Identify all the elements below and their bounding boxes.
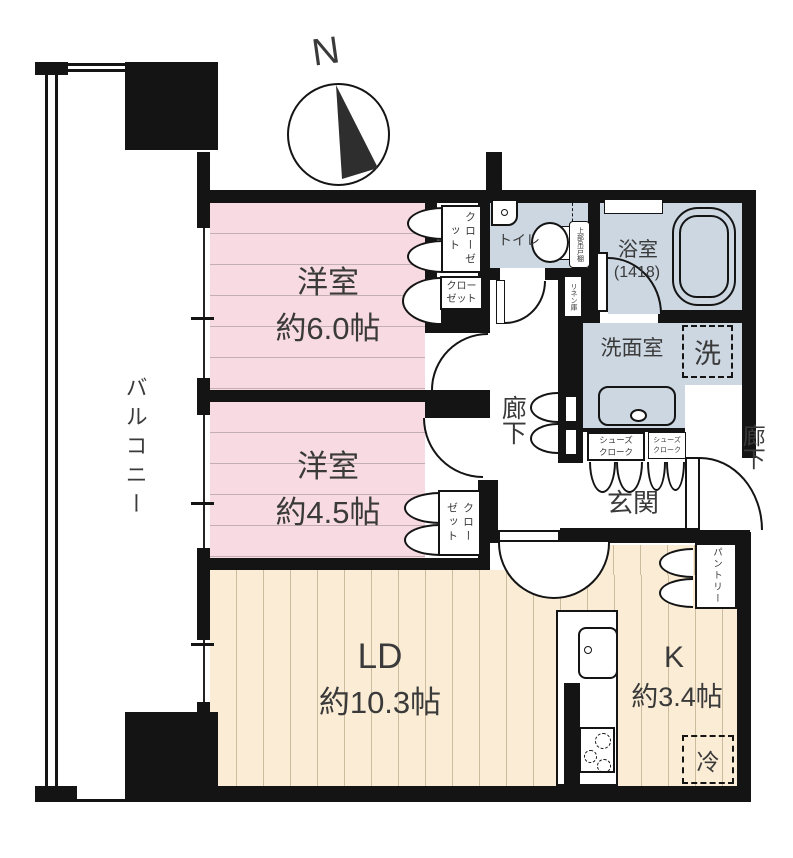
wall bbox=[486, 152, 502, 192]
door-opening bbox=[500, 268, 545, 280]
wall bbox=[197, 152, 210, 192]
wall bbox=[197, 390, 490, 402]
washing-machine: 洗 bbox=[682, 325, 733, 378]
wall bbox=[425, 402, 490, 418]
pantry: パントリー bbox=[695, 543, 737, 609]
compass-north-label: N bbox=[293, 24, 359, 82]
shoe-closet-door-arc bbox=[647, 462, 666, 491]
shoe-closet-label: シューズクローク bbox=[597, 435, 635, 457]
balcony-rail-tie bbox=[68, 63, 125, 66]
closet-label: クローゼット bbox=[444, 496, 476, 550]
balcony-rail-tie bbox=[35, 62, 68, 75]
washing-machine-label: 洗 bbox=[694, 332, 721, 371]
door-arc-toilet bbox=[505, 281, 546, 324]
door-leaf-ld bbox=[498, 530, 560, 542]
balcony-rail bbox=[45, 62, 48, 800]
bath-counter bbox=[604, 199, 663, 214]
window-bedroom1 bbox=[197, 228, 208, 378]
label-bedroom2-size: 約4.5帖 bbox=[240, 494, 416, 532]
wall-storage bbox=[565, 429, 577, 455]
closet-bedroom1-lower: クローゼット bbox=[440, 276, 483, 310]
storage-door-arc bbox=[530, 423, 558, 454]
door-arc-bedroom2 bbox=[423, 418, 483, 478]
vanity-drain bbox=[630, 409, 647, 422]
door-arc-bedroom1 bbox=[431, 333, 488, 390]
wall bbox=[197, 558, 490, 570]
label-ld-name: LD bbox=[330, 636, 430, 678]
label-toilet: トイレ bbox=[489, 231, 549, 249]
compass-needle bbox=[300, 80, 400, 190]
bathtub-inner bbox=[679, 215, 729, 298]
upper-cabinet-label: 上部吊戸棚 bbox=[575, 227, 585, 262]
linen-label: リネン庫 bbox=[568, 283, 578, 311]
closet-bedroom1-upper: クローゼット bbox=[441, 205, 482, 273]
label-kitchen-size: 約3.4帖 bbox=[613, 681, 741, 715]
kitchen-faucet bbox=[584, 646, 592, 654]
stove-burner bbox=[597, 759, 611, 773]
label-entrance: 玄関 bbox=[602, 489, 664, 519]
refrigerator-label: 冷 bbox=[697, 743, 720, 777]
label-balcony: バルコニー bbox=[118, 358, 152, 538]
linen-cabinet: リネン庫 bbox=[564, 276, 582, 317]
balcony-rail bbox=[55, 62, 58, 800]
upper-cabinet: 上部吊戸棚 bbox=[569, 221, 590, 268]
pillar bbox=[125, 712, 218, 786]
shoe-closet-right: シューズクローク bbox=[648, 432, 686, 459]
closet-bedroom2: クローゼット bbox=[438, 490, 481, 556]
wall bbox=[737, 532, 751, 786]
label-bathroom-size: (1418) bbox=[601, 263, 673, 283]
door-leaf-toilet bbox=[496, 280, 505, 324]
wall-notch bbox=[77, 786, 125, 799]
shoe-closet-left: シューズクローク bbox=[587, 432, 645, 461]
balcony-rail-tie bbox=[68, 69, 125, 72]
wall-storage bbox=[565, 396, 577, 422]
window-tick bbox=[191, 317, 214, 320]
label-bedroom1-name: 洋室 bbox=[240, 264, 416, 302]
shoe-closet-label: シューズクローク bbox=[652, 436, 682, 454]
door-leaf-entrance bbox=[685, 457, 700, 530]
refrigerator: 冷 bbox=[682, 735, 734, 784]
closet-label: クローゼット bbox=[445, 280, 479, 306]
label-bedroom1-size: 約6.0帖 bbox=[240, 310, 416, 348]
window-tick bbox=[191, 643, 214, 646]
closet-label: クローゼット bbox=[446, 211, 478, 267]
wall bbox=[197, 203, 210, 228]
shoe-closet-door-arc bbox=[666, 462, 685, 491]
window-ld bbox=[197, 640, 208, 702]
pantry-label: パントリー bbox=[709, 547, 723, 605]
window-bedroom2 bbox=[197, 415, 208, 548]
pillar bbox=[125, 62, 218, 150]
kitchen-counter-wall bbox=[564, 683, 580, 786]
label-hallway-inner: 廊下 bbox=[496, 391, 528, 449]
wall bbox=[197, 190, 755, 203]
label-washroom: 洗面室 bbox=[586, 337, 678, 361]
window-tick bbox=[191, 502, 214, 505]
room-fill-ldk bbox=[210, 570, 737, 786]
label-ld-size: 約10.3帖 bbox=[280, 682, 480, 724]
storage-door-arc bbox=[530, 392, 558, 423]
floor-plan: クローゼット クローゼット クローゼット シューズクローク シューズクローク パ… bbox=[0, 0, 793, 858]
label-bedroom2-name: 洋室 bbox=[240, 448, 416, 486]
label-bathroom-name: 浴室 bbox=[608, 239, 668, 261]
kitchen-sink bbox=[578, 627, 618, 679]
label-hallway-outer: 廊下 bbox=[737, 418, 767, 476]
stove-burner bbox=[595, 733, 611, 749]
label-kitchen-name: K bbox=[653, 640, 695, 676]
stove-burner bbox=[584, 750, 597, 763]
toilet-sink-faucet bbox=[501, 209, 508, 216]
wall bbox=[35, 786, 751, 802]
